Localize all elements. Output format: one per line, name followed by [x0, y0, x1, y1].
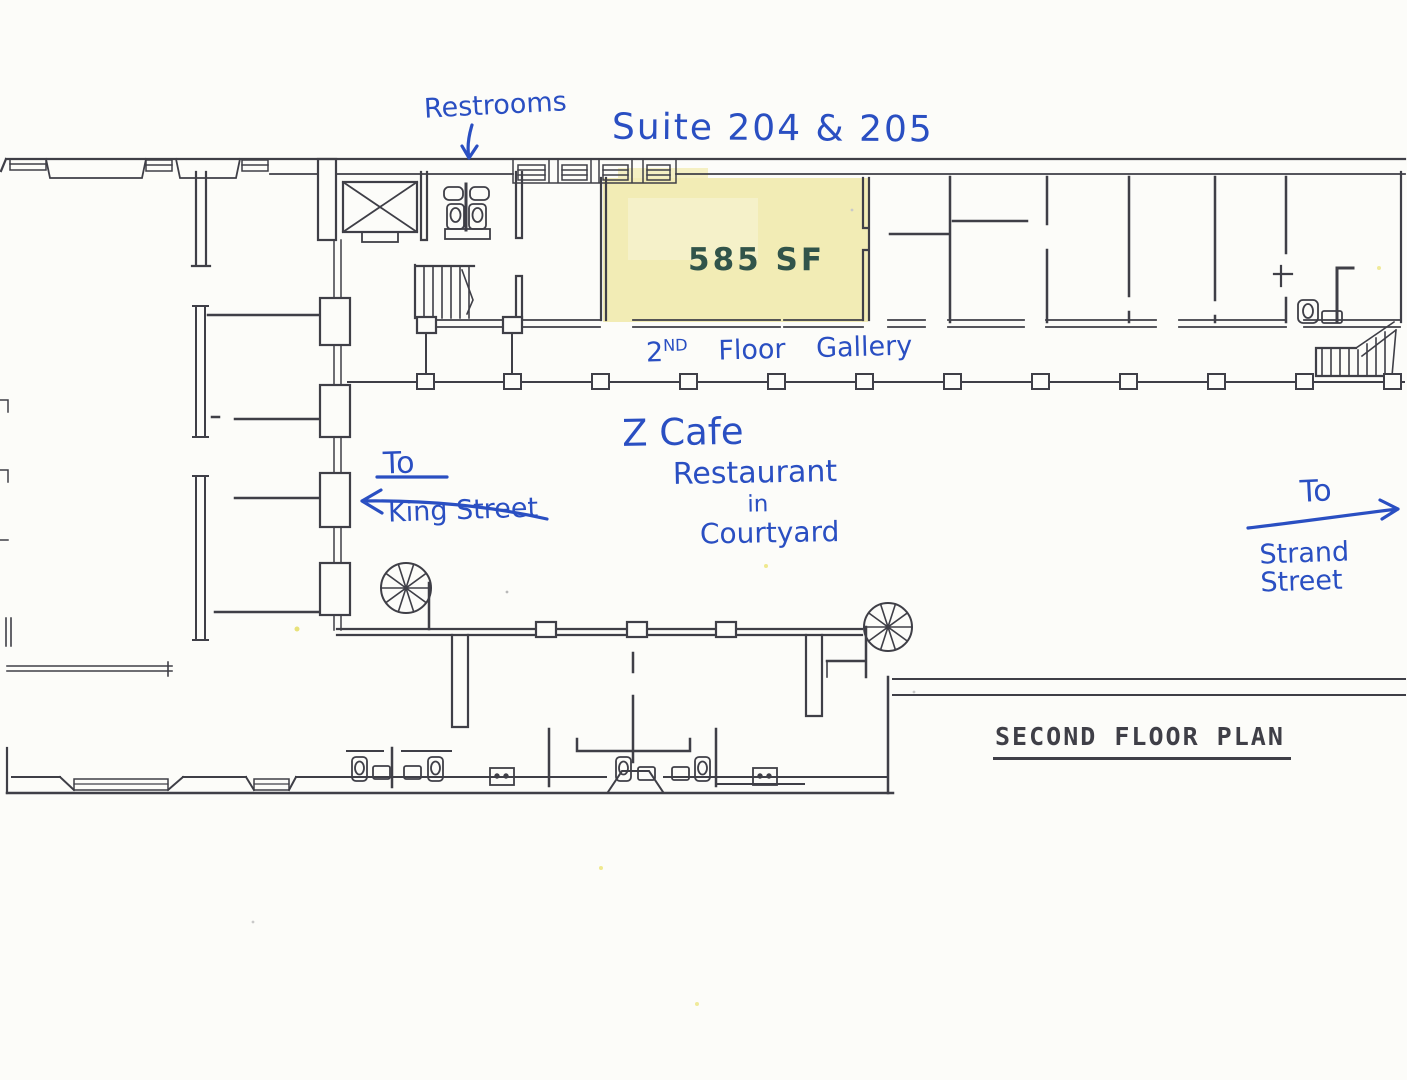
king-street-annotation: King Street — [388, 494, 539, 528]
cafe-line-4: Courtyard — [700, 518, 840, 550]
strand-walkway — [893, 679, 1405, 695]
spiral-staircase-east — [827, 603, 912, 677]
strand-street-to-annotation: To — [1299, 475, 1332, 508]
restroom-fixtures-south — [347, 748, 804, 787]
suite-annotation: Suite 204 & 205 — [612, 109, 934, 150]
king-street-text: King Street — [387, 492, 538, 528]
king-street-to-annotation: To — [382, 447, 415, 480]
pillar-east — [806, 635, 822, 716]
strand-street-annotation: Strand Street — [1259, 538, 1351, 598]
courtyard-west-wall — [320, 240, 350, 630]
cafe-line-1: Z Cafe — [622, 411, 838, 454]
west-wing-walls — [0, 306, 331, 640]
staircase-east — [1316, 322, 1396, 376]
plan-title-text: SECOND FLOOR PLAN — [995, 722, 1285, 751]
t-pillar — [192, 172, 210, 266]
restrooms-arrow-icon — [462, 125, 477, 158]
strand-to-text: To — [1299, 473, 1332, 510]
king-to-text: To — [382, 445, 415, 481]
scanned-floor-plan: Restrooms Suite 204 & 205 585 SF 2ND Flo… — [0, 0, 1407, 1080]
suite-text: Suite 204 & 205 — [612, 107, 934, 151]
pillar-west — [452, 635, 468, 727]
cafe-annotation: Z Cafe Restaurant in Courtyard — [614, 411, 840, 551]
gallery-text: Floor Gallery — [718, 331, 913, 367]
gallery-number: 2 — [646, 337, 664, 368]
restroom-fixtures-east — [1274, 266, 1353, 323]
staircase-upper — [415, 265, 474, 318]
gallery-annotation: 2ND Floor Gallery — [646, 331, 913, 368]
cafe-line-2: Restaurant — [673, 456, 839, 490]
plan-title: SECOND FLOOR PLAN — [993, 722, 1291, 760]
suite-area-annotation: 585 SF — [688, 242, 825, 278]
suite-area-text: 585 SF — [688, 242, 825, 278]
spiral-staircase-west — [381, 563, 431, 629]
east-room-partitions — [890, 172, 1401, 322]
south-exterior-wall — [7, 748, 893, 793]
strand-street-line2: Street — [1260, 567, 1351, 598]
cafe-line-3: in — [747, 491, 839, 517]
elevator-shaft — [318, 159, 417, 242]
south-building-walls — [337, 622, 888, 793]
gallery-ordinal: ND — [663, 335, 688, 355]
west-edge-fragments — [6, 618, 172, 676]
north-wall-windows — [10, 159, 676, 183]
